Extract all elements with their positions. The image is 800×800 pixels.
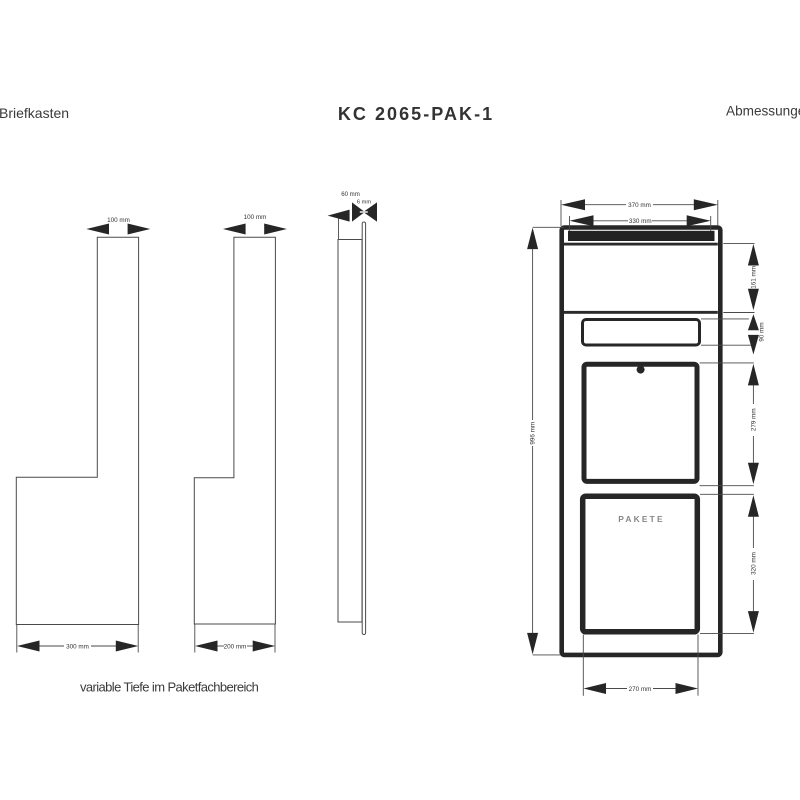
- svg-text:330 mm: 330 mm: [629, 218, 652, 225]
- svg-text:996 mm: 996 mm: [529, 422, 536, 445]
- svg-text:200 mm: 200 mm: [224, 643, 247, 650]
- svg-text:320 mm: 320 mm: [751, 552, 758, 575]
- svg-text:60 mm: 60 mm: [341, 191, 360, 198]
- svg-text:300 mm: 300 mm: [66, 643, 89, 650]
- svg-text:variable Tiefe im Paketfachber: variable Tiefe im Paketfachbereich: [80, 680, 259, 695]
- svg-text:PAKETE: PAKETE: [618, 514, 665, 524]
- svg-text:KC 2065-PAK-1: KC 2065-PAK-1: [338, 104, 494, 124]
- svg-text:6 mm: 6 mm: [357, 200, 371, 206]
- svg-text:100 mm: 100 mm: [107, 217, 130, 224]
- svg-text:270 mm: 270 mm: [629, 686, 652, 693]
- svg-text:279 mm: 279 mm: [751, 408, 758, 431]
- svg-text:161 mm: 161 mm: [751, 266, 758, 289]
- svg-text:Abmessungen: Abmessungen: [726, 104, 800, 119]
- svg-text:100 mm: 100 mm: [244, 214, 267, 221]
- svg-text:90 mm: 90 mm: [759, 322, 766, 341]
- svg-text:Briefkasten: Briefkasten: [0, 105, 69, 121]
- svg-text:370 mm: 370 mm: [628, 202, 651, 209]
